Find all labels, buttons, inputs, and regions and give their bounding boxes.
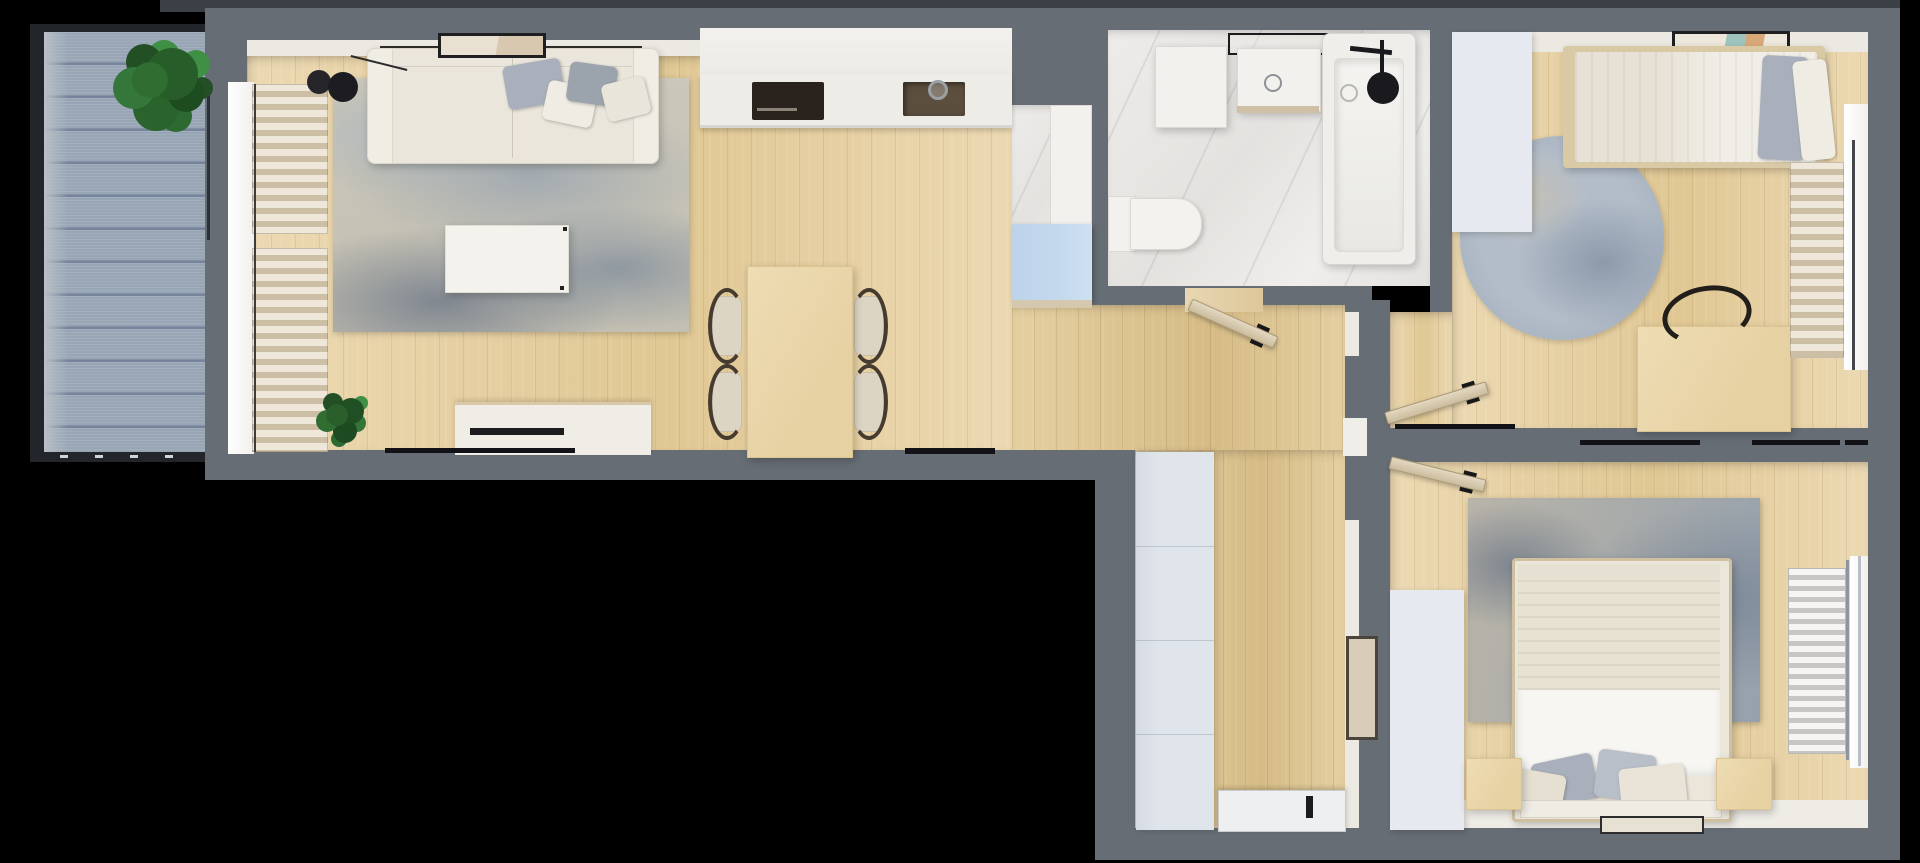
dining-chair: [704, 290, 750, 362]
entry-door-handle: [1306, 796, 1313, 818]
balcony-rail-tick: [60, 455, 68, 458]
window-rail-2: [1858, 556, 1861, 766]
balcony-rail-tick: [165, 455, 173, 458]
double-bed-headboard: [1518, 564, 1720, 578]
bedroom-bottom-wardrobe: [1390, 590, 1464, 830]
baseboard-trim: [1580, 440, 1700, 445]
balcony-plant: [132, 62, 168, 98]
nightstand-right: [1716, 758, 1772, 810]
coffee-table: [445, 225, 569, 293]
dining-chair: [704, 366, 750, 438]
living-window-glow: [228, 82, 254, 454]
floor-hall-upper: [1012, 305, 1345, 450]
toilet-bowl: [1130, 198, 1202, 250]
kitchen-upper-cabinets: [700, 28, 1012, 78]
wall-between-bedrooms: [1390, 428, 1868, 462]
bedroom-top-window-glow: [1844, 104, 1868, 370]
kitchen-counter: [700, 74, 1012, 128]
closet-blue-cabinet: [1012, 224, 1092, 302]
balcony-deck: [44, 32, 205, 452]
living-curtain-lower: [252, 248, 328, 452]
baseboard-trim: [385, 448, 575, 453]
dining-table: [747, 266, 853, 458]
door-jamb-bedrooms: [1343, 418, 1367, 456]
hall-wardrobe-seam: [1136, 640, 1214, 641]
washing-machine: [1155, 46, 1227, 128]
balcony-rail-tick: [130, 455, 138, 458]
floor-lamp-shade-large: [328, 72, 358, 102]
baseboard-trim: [1395, 424, 1515, 429]
closet-tall-cabinet: [1050, 105, 1092, 229]
closet-plinth: [1012, 300, 1092, 308]
entry-door: [1218, 790, 1346, 832]
cooktop: [752, 82, 824, 120]
towel-radiator: [1788, 568, 1846, 754]
coffee-table-leg: [560, 286, 564, 290]
wall-face-hall-east-1: [1345, 312, 1359, 356]
bathtub-drain: [1340, 84, 1358, 102]
baseboard-trim: [1845, 440, 1868, 445]
vanity-wood-trim: [1237, 106, 1319, 113]
wall-south: [1095, 828, 1900, 860]
curtain-rod: [254, 84, 256, 452]
coffee-table-leg: [563, 227, 567, 231]
bedroom-top-curtain-rod: [1852, 140, 1855, 370]
bed-foot-tray: [1600, 816, 1704, 834]
tv-stand-slot: [470, 428, 564, 435]
hall-wardrobe-seam: [1136, 734, 1214, 735]
hall-wardrobe: [1136, 452, 1214, 830]
window-rail: [1846, 560, 1849, 760]
vanity-faucet: [1264, 74, 1282, 92]
bedroom-top-wardrobe: [1452, 32, 1532, 232]
living-curtain-upper: [252, 84, 328, 234]
hall-mirror: [1346, 636, 1378, 740]
shower-head: [1367, 72, 1399, 104]
bedroom-top-curtain: [1790, 162, 1844, 358]
balcony-door-line: [207, 90, 210, 240]
hall-wardrobe-seam: [1136, 546, 1214, 547]
sink-faucet: [928, 80, 948, 100]
wall-south-living: [205, 450, 1135, 480]
balcony-deck-highlight: [44, 32, 68, 452]
double-bed-blanket: [1518, 578, 1720, 690]
cooktop-controls: [757, 108, 797, 111]
living-wall-art: [438, 33, 546, 58]
balcony-rail-tick: [95, 455, 103, 458]
nightstand-left: [1466, 758, 1522, 810]
living-plant: [326, 404, 348, 426]
shower-arm: [1380, 40, 1384, 76]
wall-bathroom-west: [1090, 8, 1108, 310]
baseboard-trim: [905, 448, 995, 454]
floor-plan: [0, 0, 1920, 863]
baseboard-trim: [1752, 440, 1840, 445]
wall-east: [1868, 8, 1900, 860]
wall-closet-top: [1010, 8, 1090, 108]
wall-bathroom-east: [1430, 8, 1452, 312]
wall-hall-west: [1095, 450, 1135, 835]
